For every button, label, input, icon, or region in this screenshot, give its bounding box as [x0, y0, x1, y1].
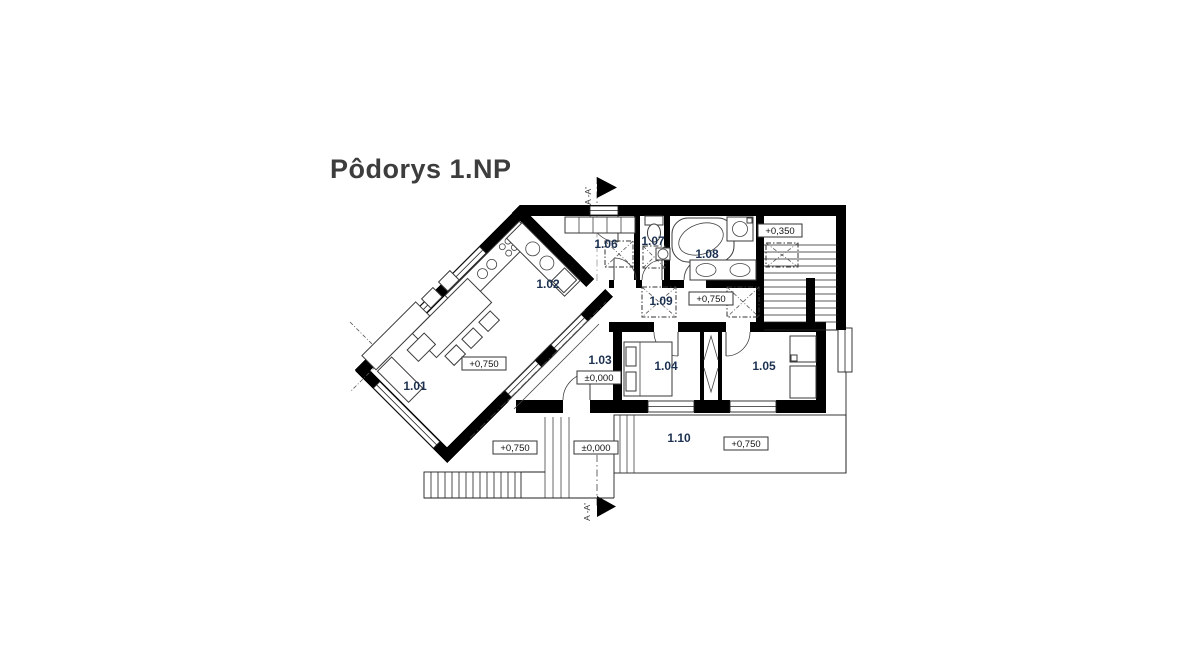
room-label-1-10: 1.10: [667, 431, 691, 445]
section-flag-icon: [597, 177, 617, 198]
elevation-terrace-south: +0,750: [724, 437, 768, 450]
elevation-living-room: +0,750: [462, 357, 506, 370]
wardrobe-desk: [790, 336, 816, 398]
elevation-hall: ±0,000: [577, 371, 621, 384]
section-label-top: A -A': [583, 187, 593, 205]
hall-wardrobe: [565, 217, 635, 233]
terrace-steps-mid: [545, 417, 569, 498]
elevation-terrace-left: +0,750: [493, 441, 537, 454]
room-label-1-01: 1.01: [403, 379, 427, 393]
svg-text:+0,750: +0,750: [731, 439, 760, 450]
staircase: [764, 245, 838, 330]
section-marker-bottom: A -A': [582, 455, 616, 521]
room-label-1-05: 1.05: [752, 359, 776, 373]
section-label-bottom: A -A': [582, 503, 592, 521]
svg-text:+0,350: +0,350: [765, 226, 794, 237]
svg-text:+0,750: +0,750: [696, 294, 725, 305]
washing-machine: [727, 217, 753, 241]
svg-text:±0,000: ±0,000: [582, 443, 611, 454]
elevation-stair-landing: +0,350: [758, 224, 802, 237]
side-gate: [838, 328, 852, 372]
room-label-1-02: 1.02: [536, 277, 560, 291]
room-label-1-08: 1.08: [695, 247, 719, 261]
section-flag-icon: [597, 496, 616, 517]
page-title: Pôdorys 1.NP: [330, 154, 512, 184]
room-label-1-06: 1.06: [594, 237, 618, 251]
room-label-1-09: 1.09: [649, 294, 673, 308]
elevation-ground-strip: ±0,000: [574, 441, 618, 454]
vanity-double-sink: [690, 260, 756, 280]
svg-text:±0,000: ±0,000: [585, 373, 614, 384]
garden-steps-left: [424, 472, 521, 498]
floor-plan-canvas: Pôdorys 1.NP A -A' A -A': [0, 0, 1180, 664]
room-label-1-07: 1.07: [641, 234, 665, 248]
elevation-corridor: +0,750: [689, 292, 733, 305]
floor-plan-page: Pôdorys 1.NP A -A' A -A': [0, 0, 1180, 664]
svg-text:+0,750: +0,750: [500, 443, 529, 454]
room-label-1-04: 1.04: [654, 359, 678, 373]
closet-shaft: [704, 336, 718, 392]
room-label-1-03: 1.03: [588, 353, 612, 367]
step-lines: [500, 310, 599, 409]
svg-text:+0,750: +0,750: [469, 359, 498, 370]
